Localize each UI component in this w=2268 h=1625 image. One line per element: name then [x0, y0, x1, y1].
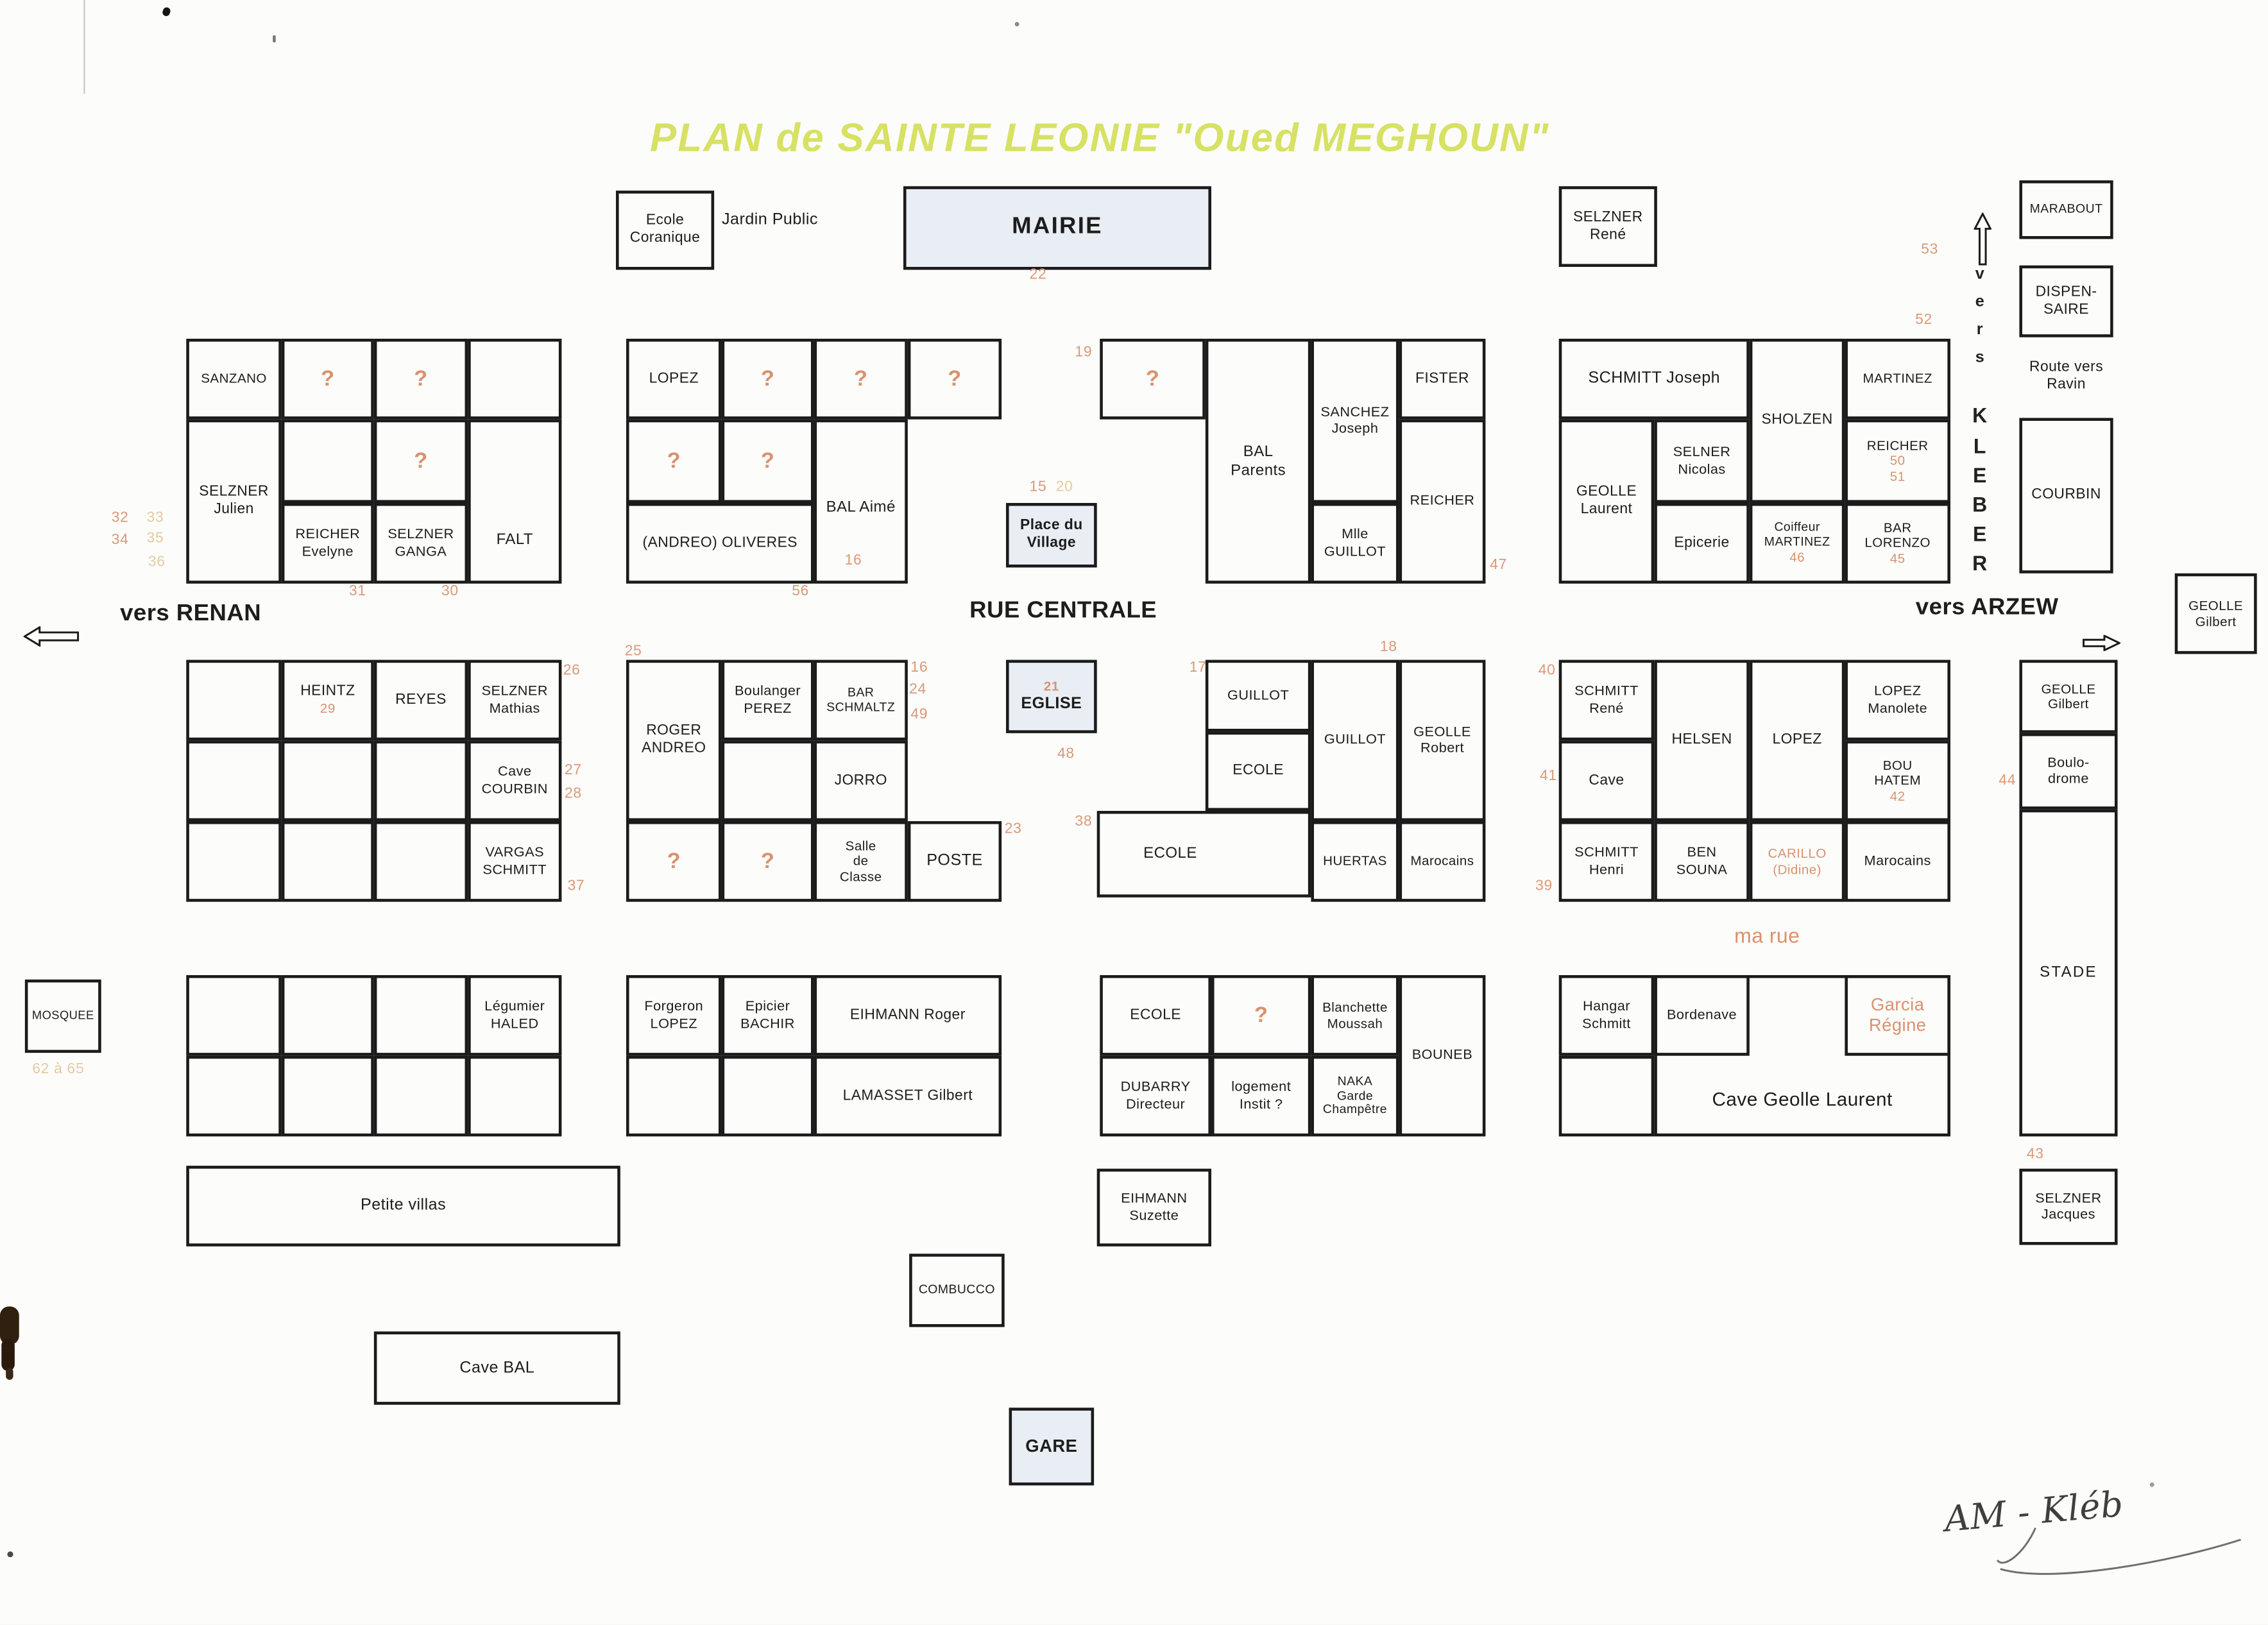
parcel-reicher-evelyne-text: REICHER	[295, 527, 360, 543]
parcel-bal-aime-text: BAL Aimé	[826, 498, 896, 516]
parcel-geolle-laurent: GEOLLELaurent	[1559, 420, 1655, 584]
parcel-unknown-text: ?	[761, 849, 774, 874]
parcel-unknown: ?	[1100, 339, 1206, 420]
parcel-petite-villas-text: Petite villas	[361, 1196, 446, 1215]
parcel-geolle-gilbert-east-text: GEOLLE	[2188, 599, 2243, 614]
parcel-gare: GARE	[1009, 1408, 1095, 1485]
parcel-selzner-mathias: SELZNERMathias	[468, 660, 561, 741]
lot-number: 16	[845, 554, 862, 569]
parcel-lopez-manolete-text: LOPEZ	[1874, 684, 1921, 700]
parcel-lamasset-gilbert: LAMASSET Gilbert	[814, 1056, 1002, 1137]
parcel-geolle-robert-text: GEOLLE	[1413, 724, 1471, 740]
parcel-cave-courbin: CaveCOURBIN	[468, 740, 561, 821]
parcel-geolle-laurent-text: Laurent	[1581, 502, 1633, 518]
parcel-unknown-text: ?	[761, 448, 774, 474]
parcel-boulanger-perez: BoulangerPEREZ	[722, 660, 814, 741]
street-vers-kleber-letter: E	[1968, 523, 1991, 544]
parcel-schmitt-henri-text: SCHMITT	[1574, 846, 1639, 862]
parcel-boulodrome-text: Boulo-	[2047, 755, 2090, 771]
parcel-salle-de-classe-text: Salle	[846, 838, 876, 854]
parcel-unknown-text: ?	[414, 366, 427, 392]
lot-number: 25	[625, 645, 642, 660]
parcel-hangar-schmitt-text: Hangar	[1583, 1000, 1630, 1016]
parcel-unknown: ?	[374, 420, 468, 503]
parcel-legumier-haled: LégumierHALED	[468, 975, 561, 1056]
label-ma-rue: ma rue	[1701, 921, 1833, 950]
parcel-andreo-oliveres: (ANDREO) OLIVERES	[626, 503, 814, 584]
lot-number: 38	[1075, 815, 1092, 830]
parcel-ben-souna-text: BEN	[1687, 846, 1717, 862]
parcel-lopez: LOPEZ	[626, 339, 722, 420]
parcel-roger-andreo: ROGERANDREO	[626, 660, 722, 821]
parcel-bal-parents-text: BAL	[1243, 443, 1274, 461]
parcel-eglise-text: 21	[1044, 679, 1059, 695]
street-vers-kleber-letter: v	[1968, 267, 1991, 283]
parcel-selzner-jacques: SELZNERJacques	[2019, 1169, 2117, 1245]
parcel-heintz-text: HEINTZ	[300, 684, 355, 701]
parcel-schmitt-rene-text: SCHMITT	[1574, 684, 1639, 700]
parcel-ecole-coranique-text: Ecole	[646, 213, 684, 230]
parcel-unknown-text: ?	[761, 366, 774, 392]
parcel-ecole: ECOLE	[1100, 975, 1211, 1056]
parcel-selzner-ganga: SELZNERGANGA	[374, 503, 468, 584]
street-vers-kleber-letter: e	[1968, 294, 1991, 311]
parcel-reyes-text: REYES	[395, 692, 447, 708]
scan-artifact	[2150, 1483, 2154, 1487]
scan-artifact	[1015, 22, 1019, 26]
parcel-jorro-text: JORRO	[835, 772, 887, 789]
empty-parcel	[722, 1056, 814, 1137]
parcel-unknown: ?	[626, 821, 722, 902]
street-vers-arzew-text: vers ARZEW	[1916, 595, 2059, 622]
parcel-ben-souna-text: SOUNA	[1676, 862, 1728, 878]
parcel-guillot-text: GUILLOT	[1227, 688, 1289, 704]
street-vers-kleber-letter: r	[1968, 323, 1991, 339]
parcel-selzner-jacques-text: Jacques	[2042, 1207, 2095, 1223]
parcel-schmitt-rene: SCHMITTRené	[1559, 660, 1655, 741]
parcel-garcia-regine-text: Régine	[1869, 1016, 1927, 1036]
parcel-coiffeur-martinez-text: MARTINEZ	[1764, 536, 1830, 550]
parcel-selner-nicolas-text: SELNER	[1673, 445, 1731, 461]
parcel-selzner-jacques-text: SELZNER	[2035, 1191, 2101, 1207]
parcel-coiffeur-martinez-text: 46	[1789, 550, 1805, 565]
empty-parcel	[186, 660, 282, 741]
parcel-naka-garde-champetre-text: Champêtre	[1323, 1103, 1387, 1118]
label-route-vers-ravin-text: Route vers	[2029, 360, 2103, 377]
parcel-reicher-text: REICHER	[1410, 493, 1475, 509]
parcel-unknown-text: ?	[414, 448, 427, 474]
parcel-unknown-text: ?	[667, 448, 681, 474]
parcel-combucco: COMBUCCO	[909, 1254, 1005, 1327]
parcel-selner-nicolas: SELNERNicolas	[1654, 420, 1750, 503]
parcel-bouneb: BOUNEB	[1399, 975, 1486, 1136]
scan-artifact	[273, 35, 276, 42]
parcel-reyes: REYES	[374, 660, 468, 741]
scan-artifact	[162, 6, 171, 17]
parcel-sanchez-joseph-text: Joseph	[1332, 421, 1379, 437]
parcel-stade: STADE	[2019, 810, 2117, 1137]
parcel-marocains-text: Marocains	[1410, 854, 1474, 869]
parcel-schmitt-henri: SCHMITTHenri	[1559, 821, 1655, 902]
parcel-selzner-julien-text: Julien	[214, 502, 253, 518]
parcel-unknown: ?	[1211, 975, 1311, 1056]
parcel-hangar-schmitt: HangarSchmitt	[1559, 975, 1655, 1056]
lot-number: 22	[1030, 268, 1047, 283]
parcel-schmitt-henri-text: Henri	[1589, 862, 1624, 878]
parcel-unknown: ?	[722, 420, 814, 503]
parcel-dubarry-directeur: DUBARRYDirecteur	[1100, 1056, 1211, 1137]
parcel-mosquee: MOSQUEE	[25, 980, 101, 1053]
parcel-epicier-bachir-text: BACHIR	[740, 1016, 795, 1032]
parcel-naka-garde-champetre-text: NAKA	[1338, 1075, 1373, 1089]
parcel-coiffeur-martinez: CoiffeurMARTINEZ46	[1750, 503, 1845, 584]
parcel-unknown-text: ?	[854, 366, 867, 392]
parcel-reicher-evelyne-text: Evelyne	[302, 543, 354, 559]
lot-number: 20	[1056, 481, 1073, 496]
parcel-bal-parents: BALParents	[1206, 339, 1311, 584]
parcel-cave: Cave	[1559, 740, 1655, 821]
parcel-selner-nicolas-text: Nicolas	[1678, 461, 1725, 477]
parcel-boulodrome-text: drome	[2048, 771, 2089, 787]
parcel-legumier-haled-text: Légumier	[484, 1000, 545, 1016]
parcel-bou-hatem-text: HATEM	[1874, 773, 1921, 788]
scan-artifact	[1, 1339, 15, 1371]
parcel-cave-bal: Cave BAL	[374, 1331, 620, 1404]
scan-artifact	[83, 0, 85, 94]
parcel-poste: POSTE	[908, 821, 1002, 902]
parcel-combucco-text: COMBUCCO	[919, 1283, 995, 1298]
lot-number: 36	[148, 556, 166, 570]
parcel-unknown: ?	[722, 821, 814, 902]
label-route-vers-ravin: Route versRavin	[2019, 355, 2113, 399]
parcel-naka-garde-champetre-text: Garde	[1337, 1089, 1373, 1103]
parcel-logement-instit-text: logement	[1231, 1080, 1291, 1096]
parcel-bar-lorenzo-text: BAR	[1884, 520, 1912, 536]
lot-number: 44	[1999, 774, 2016, 789]
street-vers-arzew: vers ARZEW	[1884, 592, 2090, 624]
parcel-sanzano-text: SANZANO	[201, 371, 267, 387]
lot-number: 30	[441, 585, 459, 600]
lot-number: 41	[1540, 770, 1557, 785]
parcel-hangar-schmitt-text: Schmitt	[1582, 1016, 1631, 1032]
lot-number: 49	[910, 708, 928, 723]
parcel-carillo-didine-text: (Didine)	[1773, 862, 1821, 877]
parcel-ecole-text: ECOLE	[1232, 763, 1284, 779]
arrow-left-icon	[24, 626, 80, 647]
lot-number: 27	[565, 764, 582, 779]
parcel-forgeron-lopez: ForgeronLOPEZ	[626, 975, 722, 1056]
parcel-ecole-text: ECOLE	[1130, 1007, 1181, 1024]
parcel-unknown: ?	[814, 339, 908, 420]
parcel-poste-text: POSTE	[926, 852, 983, 871]
empty-parcel	[374, 821, 468, 902]
parcel-jorro: JORRO	[814, 740, 908, 821]
parcel-reicher-50-51-text: REICHER	[1867, 438, 1929, 454]
parcel-bar-lorenzo-text: LORENZO	[1864, 536, 1931, 551]
parcel-boulanger-perez-text: PEREZ	[744, 700, 792, 716]
parcel-marabout-text: MARABOUT	[2030, 203, 2103, 217]
parcel-geolle-gilbert-east: GEOLLEGilbert	[2175, 574, 2257, 654]
parcel-mlle-guillot-text: Mlle	[1342, 527, 1368, 543]
parcel-logement-instit: logementInstit ?	[1211, 1056, 1311, 1137]
street-vers-kleber-letter: E	[1968, 465, 1991, 486]
parcel-geolle-gilbert-text: Gilbert	[2048, 697, 2089, 712]
parcel-vargas-schmitt: VARGASSCHMITT	[468, 821, 561, 902]
empty-parcel	[282, 821, 374, 902]
street-vers-kleber-letter: B	[1968, 494, 1991, 515]
parcel-guillot: GUILLOT	[1311, 660, 1399, 821]
parcel-geolle-gilbert-east-text: Gilbert	[2196, 614, 2237, 629]
parcel-salle-de-classe-text: de	[853, 854, 869, 869]
empty-parcel	[722, 740, 814, 821]
lot-number: 19	[1075, 346, 1092, 361]
parcel-epicerie-text: Epicerie	[1674, 535, 1729, 552]
parcel-eihmann-suzette-text: Suzette	[1129, 1207, 1179, 1223]
parcel-guillot: GUILLOT	[1206, 660, 1311, 732]
parcel-sholzen: SHOLZEN	[1750, 339, 1845, 503]
parcel-dispensaire-text: SAIRE	[2043, 302, 2089, 318]
street-vers-kleber-letter: s	[1968, 350, 1991, 366]
parcel-geolle-robert: GEOLLERobert	[1399, 660, 1486, 821]
parcel-vargas-schmitt-text: SCHMITT	[482, 862, 547, 878]
parcel-cave-geolle-laurent-text: Cave Geolle Laurent	[1712, 1088, 1892, 1110]
arrow-right-icon	[2083, 632, 2120, 648]
empty-parcel	[282, 740, 374, 821]
parcel-sanchez-joseph-text: SANCHEZ	[1320, 405, 1389, 421]
empty-parcel	[186, 740, 282, 821]
parcel-schmitt-rene-text: René	[1589, 700, 1624, 716]
parcel-place-du-village: Place duVillage	[1006, 503, 1097, 568]
parcel-schmitt-joseph-text: SCHMITT Joseph	[1588, 370, 1720, 388]
parcel-marocains-text: Marocains	[1864, 853, 1931, 869]
parcel-stade-text: STADE	[2040, 964, 2097, 982]
parcel-reicher: REICHER	[1399, 420, 1486, 584]
parcel-eglise: 21EGLISE	[1006, 660, 1097, 733]
parcel-forgeron-lopez-text: Forgeron	[644, 1000, 703, 1016]
parcel-lopez-text: LOPEZ	[649, 371, 699, 387]
parcel-bal-parents-text: Parents	[1231, 461, 1286, 479]
parcel-selzner-rene-text: René	[1590, 226, 1626, 243]
parcel-gare-text: GARE	[1025, 1436, 1077, 1457]
street-vers-renan-text: vers RENAN	[120, 600, 261, 627]
parcel-roger-andreo-text: ANDREO	[642, 740, 706, 757]
parcel-reicher-50-51-text: 50	[1890, 454, 1906, 469]
parcel-epicier-bachir: EpicierBACHIR	[722, 975, 814, 1056]
lot-number: 48	[1057, 748, 1075, 763]
parcel-carillo-didine-text: CARILLO	[1768, 846, 1826, 862]
parcel-sanchez-joseph: SANCHEZJoseph	[1311, 339, 1399, 503]
lot-number: 43	[2027, 1148, 2044, 1163]
parcel-unknown: ?	[908, 339, 1002, 420]
parcel-lopez-manolete-text: Manolete	[1868, 700, 1927, 716]
lot-number: 23	[1005, 822, 1022, 837]
lot-number: 53	[1921, 243, 1938, 258]
parcel-reicher-50-51: REICHER5051	[1845, 420, 1950, 503]
parcel-mairie-text: MAIRIE	[1012, 214, 1103, 241]
parcel-ecole-text: ECOLE	[1143, 845, 1197, 863]
parcel-selzner-rene: SELZNERRené	[1559, 186, 1657, 267]
parcel-unknown-text: ?	[667, 849, 681, 874]
parcel-unknown-text: ?	[321, 366, 334, 392]
parcel-blanchette-moussah-text: Moussah	[1327, 1016, 1383, 1031]
parcel-dubarry-directeur-text: Directeur	[1126, 1096, 1185, 1112]
lot-number: 33	[147, 512, 164, 527]
parcel-mosquee-text: MOSQUEE	[32, 1009, 94, 1023]
parcel-andreo-oliveres-text: (ANDREO) OLIVERES	[643, 535, 797, 552]
parcel-bar-lorenzo-text: 45	[1890, 551, 1906, 566]
parcel-lamasset-gilbert-text: LAMASSET Gilbert	[843, 1087, 973, 1104]
label-route-vers-ravin-text: Ravin	[2047, 377, 2086, 393]
lot-number: 24	[909, 683, 926, 698]
lot-number: 35	[147, 532, 164, 547]
lot-number: 37	[568, 880, 585, 894]
parcel-carillo-didine: CARILLO(Didine)	[1750, 821, 1845, 902]
street-vers-renan: vers RENAN	[88, 599, 293, 631]
parcel-selzner-ganga-text: GANGA	[395, 543, 447, 559]
parcel-eihmann-roger-text: EIHMANN Roger	[850, 1007, 966, 1024]
parcel-heintz-text: 29	[320, 701, 336, 717]
parcel-garcia-regine-text: Garcia	[1871, 995, 1925, 1016]
parcel-geolle-gilbert-text: GEOLLE	[2041, 681, 2095, 697]
lot-number: 56	[792, 585, 809, 600]
parcel-huertas: HUERTAS	[1311, 821, 1399, 902]
parcel-helsen: HELSEN	[1654, 660, 1750, 821]
parcel-fister-text: FISTER	[1415, 371, 1469, 387]
parcel-helsen-text: HELSEN	[1671, 732, 1732, 749]
parcel-selzner-rene-text: SELZNER	[1573, 210, 1643, 226]
parcel-mlle-guillot: MlleGUILLOT	[1311, 503, 1399, 584]
parcel-salle-de-classe: SalledeClasse	[814, 821, 908, 902]
parcel-mairie: MAIRIE	[903, 186, 1211, 269]
label-ma-rue-text: ma rue	[1734, 924, 1800, 948]
parcel-bar-schmaltz-text: BAR	[848, 686, 874, 701]
empty-parcel	[186, 821, 282, 902]
parcel-fister: FISTER	[1399, 339, 1486, 420]
parcel-marocains: Marocains	[1845, 821, 1950, 902]
village-plan-scan: PLAN de SAINTE LEONIE "Oued MEGHOUN"Ecol…	[0, 0, 2268, 1625]
scan-artifact	[6, 1368, 13, 1380]
scan-artifact	[7, 1551, 13, 1557]
street-vers-kleber-letter: L	[1968, 436, 1991, 456]
parcel-eihmann-suzette: EIHMANNSuzette	[1097, 1169, 1211, 1246]
parcel-bar-schmaltz-text: SCHMALTZ	[826, 700, 895, 715]
parcel-legumier-haled-text: HALED	[491, 1016, 539, 1032]
parcel-falt-text: FALT	[497, 531, 533, 549]
plan-title: PLAN de SAINTE LEONIE "Oued MEGHOUN"	[586, 114, 1613, 164]
parcel-selzner-julien-text: SELZNER	[199, 484, 269, 501]
parcel-geolle-robert-text: Robert	[1420, 740, 1464, 756]
empty-parcel	[186, 975, 282, 1056]
parcel-bou-hatem-text: 42	[1890, 788, 1906, 804]
plan-title-text: PLAN de SAINTE LEONIE "Oued MEGHOUN"	[650, 116, 1550, 162]
empty-parcel	[374, 975, 468, 1056]
lot-number: 16	[910, 661, 928, 676]
parcel-unknown: ?	[722, 339, 814, 420]
empty-parcel	[282, 975, 374, 1056]
parcel-ecole: ECOLE	[1097, 811, 1311, 898]
parcel-selzner-ganga-text: SELZNER	[388, 527, 454, 543]
parcel-selzner-mathias-text: SELZNER	[482, 684, 548, 700]
parcel-blanchette-moussah-text: Blanchette	[1322, 1000, 1388, 1016]
parcel-geolle-gilbert: GEOLLEGilbert	[2019, 660, 2117, 733]
street-vers-kleber-letter: R	[1968, 553, 1991, 574]
parcel-bar-lorenzo: BARLORENZO45	[1845, 503, 1950, 584]
parcel-unknown-text: ?	[948, 366, 961, 392]
parcel-naka-garde-champetre: NAKAGardeChampêtre	[1311, 1056, 1399, 1137]
empty-parcel	[1559, 1056, 1655, 1137]
lot-number: 17	[1189, 661, 1207, 676]
parcel-martinez-text: MARTINEZ	[1863, 371, 1932, 387]
parcel-mlle-guillot-text: GUILLOT	[1324, 543, 1386, 559]
parcel-salle-de-classe-text: Classe	[840, 869, 882, 885]
label-jardin-public: Jardin Public	[689, 205, 850, 235]
lot-number: 32	[112, 512, 129, 527]
parcel-ben-souna: BENSOUNA	[1654, 821, 1750, 902]
parcel-boulanger-perez-text: Boulanger	[735, 684, 801, 700]
parcel-logement-instit-text: Instit ?	[1240, 1096, 1283, 1112]
empty-parcel	[282, 1056, 374, 1137]
parcel-courbin-text: COURBIN	[2031, 487, 2101, 504]
parcel-unknown: ?	[626, 420, 722, 503]
parcel-bouneb-text: BOUNEB	[1412, 1048, 1472, 1064]
empty-parcel	[626, 1056, 722, 1137]
lot-number: 26	[563, 664, 581, 679]
empty-parcel	[374, 740, 468, 821]
parcel-lopez-manolete: LOPEZManolete	[1845, 660, 1950, 741]
lot-number: 15	[1030, 481, 1047, 496]
parcel-lopez-text: LOPEZ	[1772, 732, 1821, 749]
lot-number: 18	[1380, 641, 1397, 656]
parcel-geolle-laurent-text: GEOLLE	[1576, 484, 1637, 501]
empty-parcel	[374, 1056, 468, 1137]
lot-number: 62 à 65	[32, 1063, 84, 1078]
parcel-cave-text: Cave	[1589, 772, 1624, 789]
parcel-bou-hatem: BOUHATEM42	[1845, 740, 1950, 821]
street-rue-centrale-text: RUE CENTRALE	[969, 598, 1157, 625]
parcel-dispensaire-text: DISPEN-	[2036, 284, 2097, 301]
parcel-eglise-text: EGLISE	[1021, 695, 1082, 713]
parcel-reicher-evelyne: REICHEREvelyne	[282, 503, 374, 584]
parcel-vargas-schmitt-text: VARGAS	[485, 846, 544, 862]
empty-parcel	[282, 420, 374, 503]
parcel-blanchette-moussah: BlanchetteMoussah	[1311, 975, 1399, 1056]
parcel-heintz: HEINTZ29	[282, 660, 374, 741]
parcel-bar-schmaltz: BARSCHMALTZ	[814, 660, 908, 741]
signature-flourish	[1991, 1519, 2248, 1595]
parcel-unknown-text: ?	[1146, 366, 1159, 392]
parcel-coiffeur-martinez-text: Coiffeur	[1774, 521, 1820, 536]
parcel-schmitt-joseph: SCHMITT Joseph	[1559, 339, 1750, 420]
parcel-place-du-village-text: Place du	[1020, 518, 1083, 535]
lot-number: 31	[349, 585, 366, 600]
parcel-roger-andreo-text: ROGER	[646, 724, 701, 740]
arrow-up-icon	[1974, 212, 1991, 265]
lot-number: 39	[1535, 880, 1553, 894]
street-rue-centrale: RUE CENTRALE	[924, 595, 1202, 627]
parcel-sanzano: SANZANO	[186, 339, 282, 420]
parcel-dispensaire: DISPEN-SAIRE	[2019, 266, 2113, 337]
parcel-marabout: MARABOUT	[2019, 180, 2113, 239]
parcel-cave-courbin-text: COURBIN	[482, 781, 548, 797]
parcel-marocains: Marocains	[1399, 821, 1486, 902]
lot-number: 52	[1915, 314, 1932, 328]
parcel-epicier-bachir-text: Epicier	[746, 1000, 790, 1016]
parcel-guillot-text: GUILLOT	[1324, 733, 1386, 749]
parcel-reicher-50-51-text: 51	[1890, 469, 1906, 484]
parcel-unknown: ?	[374, 339, 468, 420]
parcel-garcia-regine: GarciaRégine	[1845, 975, 1950, 1056]
parcel-falt: FALT	[468, 420, 561, 584]
